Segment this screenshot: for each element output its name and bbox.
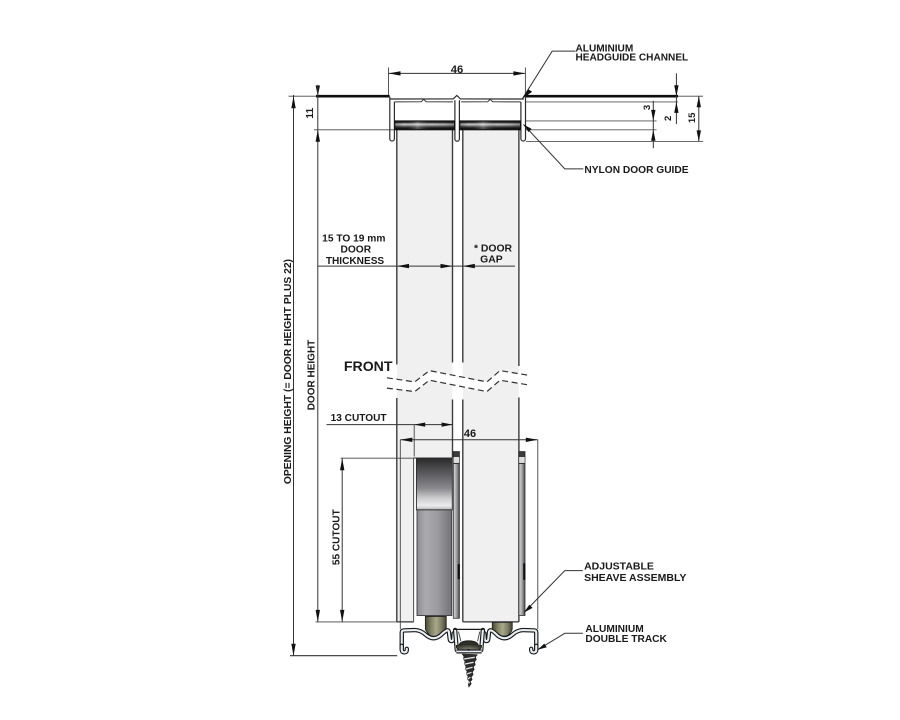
svg-text:GAP: GAP: [480, 254, 503, 265]
svg-text:11: 11: [305, 107, 316, 118]
svg-text:55 CUTOUT: 55 CUTOUT: [332, 508, 343, 565]
svg-text:DOOR HEIGHT: DOOR HEIGHT: [306, 340, 317, 411]
svg-text:FRONT: FRONT: [344, 358, 393, 374]
svg-text:46: 46: [451, 64, 463, 76]
svg-text:DOUBLE TRACK: DOUBLE TRACK: [585, 634, 667, 645]
svg-text:HEADGUIDE CHANNEL: HEADGUIDE CHANNEL: [576, 53, 689, 64]
svg-text:THICKNESS: THICKNESS: [326, 256, 385, 267]
svg-text:DOOR: DOOR: [341, 244, 372, 255]
svg-text:OPENING HEIGHT (= DOOR HEIGHT: OPENING HEIGHT (= DOOR HEIGHT PLUS 22): [283, 259, 294, 484]
svg-text:46: 46: [464, 428, 476, 440]
svg-text:13 CUTOUT: 13 CUTOUT: [331, 413, 388, 424]
svg-text:15: 15: [687, 112, 698, 123]
svg-text:3: 3: [642, 105, 653, 110]
svg-text:15 TO 19 mm: 15 TO 19 mm: [322, 233, 385, 244]
svg-text:SHEAVE ASSEMBLY: SHEAVE ASSEMBLY: [584, 572, 686, 584]
svg-text:* DOOR: * DOOR: [474, 243, 513, 254]
svg-text:NYLON DOOR GUIDE: NYLON DOOR GUIDE: [584, 165, 688, 176]
svg-text:ADJUSTABLE: ADJUSTABLE: [584, 560, 654, 572]
svg-text:2: 2: [663, 116, 674, 121]
